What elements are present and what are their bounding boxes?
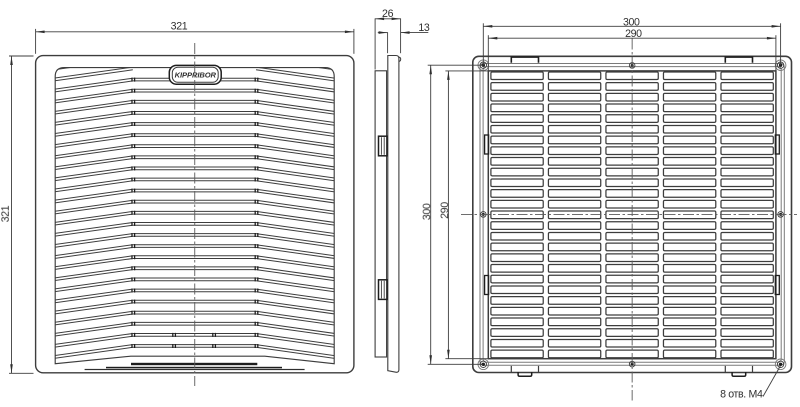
svg-text:290: 290 (625, 28, 642, 40)
svg-text:300: 300 (421, 203, 433, 220)
svg-text:8 отв. М4: 8 отв. М4 (720, 388, 763, 400)
svg-text:KIPPRIBOR: KIPPRIBOR (175, 71, 217, 80)
svg-text:290: 290 (439, 202, 451, 219)
svg-text:300: 300 (623, 16, 640, 28)
svg-text:13: 13 (418, 22, 430, 34)
svg-text:321: 321 (0, 205, 12, 222)
svg-text:321: 321 (171, 20, 188, 32)
svg-text:26: 26 (382, 8, 394, 20)
